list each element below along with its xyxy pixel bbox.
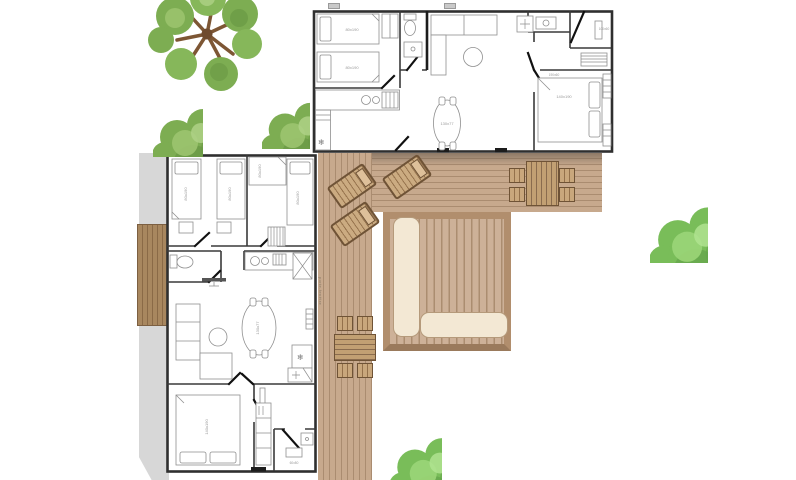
unit1-double-bedroom: 190x60 140x190 — [538, 73, 611, 146]
bed-size-label: 80x190 — [227, 187, 232, 201]
bed-size-label: 80x190 — [183, 187, 188, 201]
bed-size-label: 80x190 — [345, 27, 359, 32]
tree-icon — [103, 57, 203, 157]
tree-icon — [338, 384, 442, 480]
closet — [256, 403, 271, 465]
tree-icon — [214, 53, 310, 149]
deck-chair — [509, 187, 525, 202]
basin-size-label: 60x80 — [290, 461, 299, 465]
pouf — [464, 48, 483, 67]
mobile-home-2: 80x190 80x190 80x190 80x190 — [165, 152, 319, 476]
unit2-master-bedroom: 140x190 — [176, 395, 271, 465]
bed-size-label: 140x190 — [204, 419, 209, 435]
floor-plan-scene: porte-fenêtre 80x190 80x190 — [0, 0, 796, 480]
bed-size-label: 80x190 — [345, 65, 359, 70]
tree-icon — [592, 147, 708, 263]
cabinet-size-label: 100x60 — [599, 27, 610, 31]
sink-icon — [362, 96, 371, 105]
deck-table — [334, 334, 376, 361]
table-size-label: 130x77 — [255, 321, 260, 335]
deck-chair — [509, 168, 525, 183]
lounge-daybed — [383, 212, 511, 351]
pouf — [209, 328, 227, 346]
mobile-home-1: 80x190 80x190 ❄ — [312, 8, 616, 155]
deck-chair — [357, 363, 373, 378]
wardrobe-size-label: 190x60 — [549, 73, 560, 77]
tv — [202, 278, 226, 282]
washbasin — [286, 448, 302, 457]
unit1-door-threshold — [495, 148, 507, 153]
shower — [301, 433, 313, 445]
daybed-cushion-vertical — [393, 217, 420, 337]
bed-size-label: 140x190 — [556, 94, 572, 99]
deck-table — [526, 161, 559, 206]
fridge-snowflake-icon: ❄ — [297, 353, 304, 362]
deck-chair — [357, 316, 373, 331]
table-size-label: 130x77 — [440, 121, 454, 126]
deck-chair — [559, 168, 575, 183]
daybed-cushion-horizontal — [420, 312, 508, 338]
sink-icon — [251, 257, 260, 266]
deck-chair — [559, 187, 575, 202]
bed-size-label: 80x190 — [257, 164, 262, 178]
fridge-snowflake-icon: ❄ — [318, 138, 325, 147]
unit2-door-threshold — [251, 467, 266, 472]
deck-chair — [337, 363, 353, 378]
bed-size-label: 80x190 — [295, 191, 300, 205]
deck-chair — [337, 316, 353, 331]
ladder — [268, 227, 285, 246]
